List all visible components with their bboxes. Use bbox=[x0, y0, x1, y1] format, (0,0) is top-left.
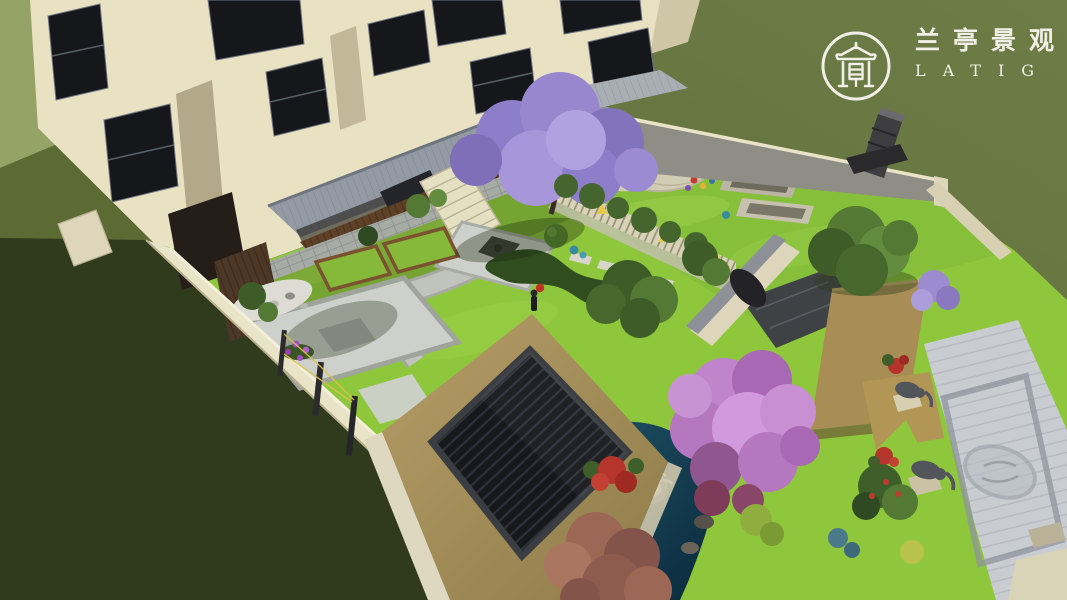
red-umbrella bbox=[536, 284, 544, 292]
pavilion-seal-icon bbox=[818, 28, 894, 104]
latig-logo: 兰亭景观 LATIG bbox=[818, 26, 1067, 104]
blue-flower-cluster bbox=[570, 246, 579, 255]
window bbox=[48, 4, 108, 100]
logo-chinese-text: 兰亭景观 bbox=[915, 26, 1067, 56]
landscape-render: 兰亭景观 LATIG bbox=[0, 0, 1067, 600]
logo-latin-text: LATIG bbox=[915, 61, 1067, 80]
garden-bench bbox=[722, 211, 730, 219]
blue-flower-cluster bbox=[580, 252, 587, 259]
window bbox=[266, 58, 330, 136]
logo-wordmark: 兰亭景观 LATIG bbox=[915, 26, 1067, 80]
